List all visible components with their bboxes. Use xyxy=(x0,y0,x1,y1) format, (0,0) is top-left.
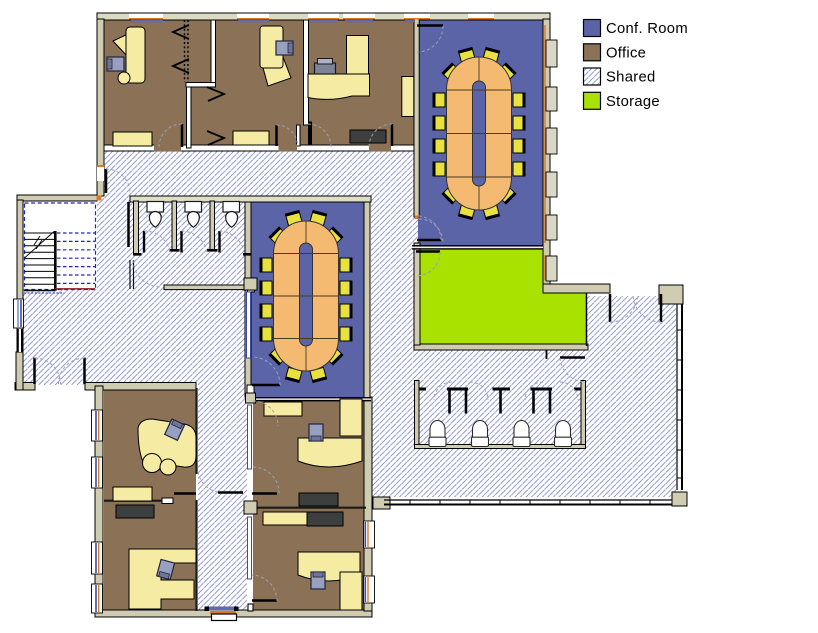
svg-text:Conf. Room: Conf. Room xyxy=(606,21,688,37)
svg-text:Storage: Storage xyxy=(606,94,660,110)
svg-text:Shared: Shared xyxy=(606,70,656,86)
svg-text:Office: Office xyxy=(606,45,646,61)
